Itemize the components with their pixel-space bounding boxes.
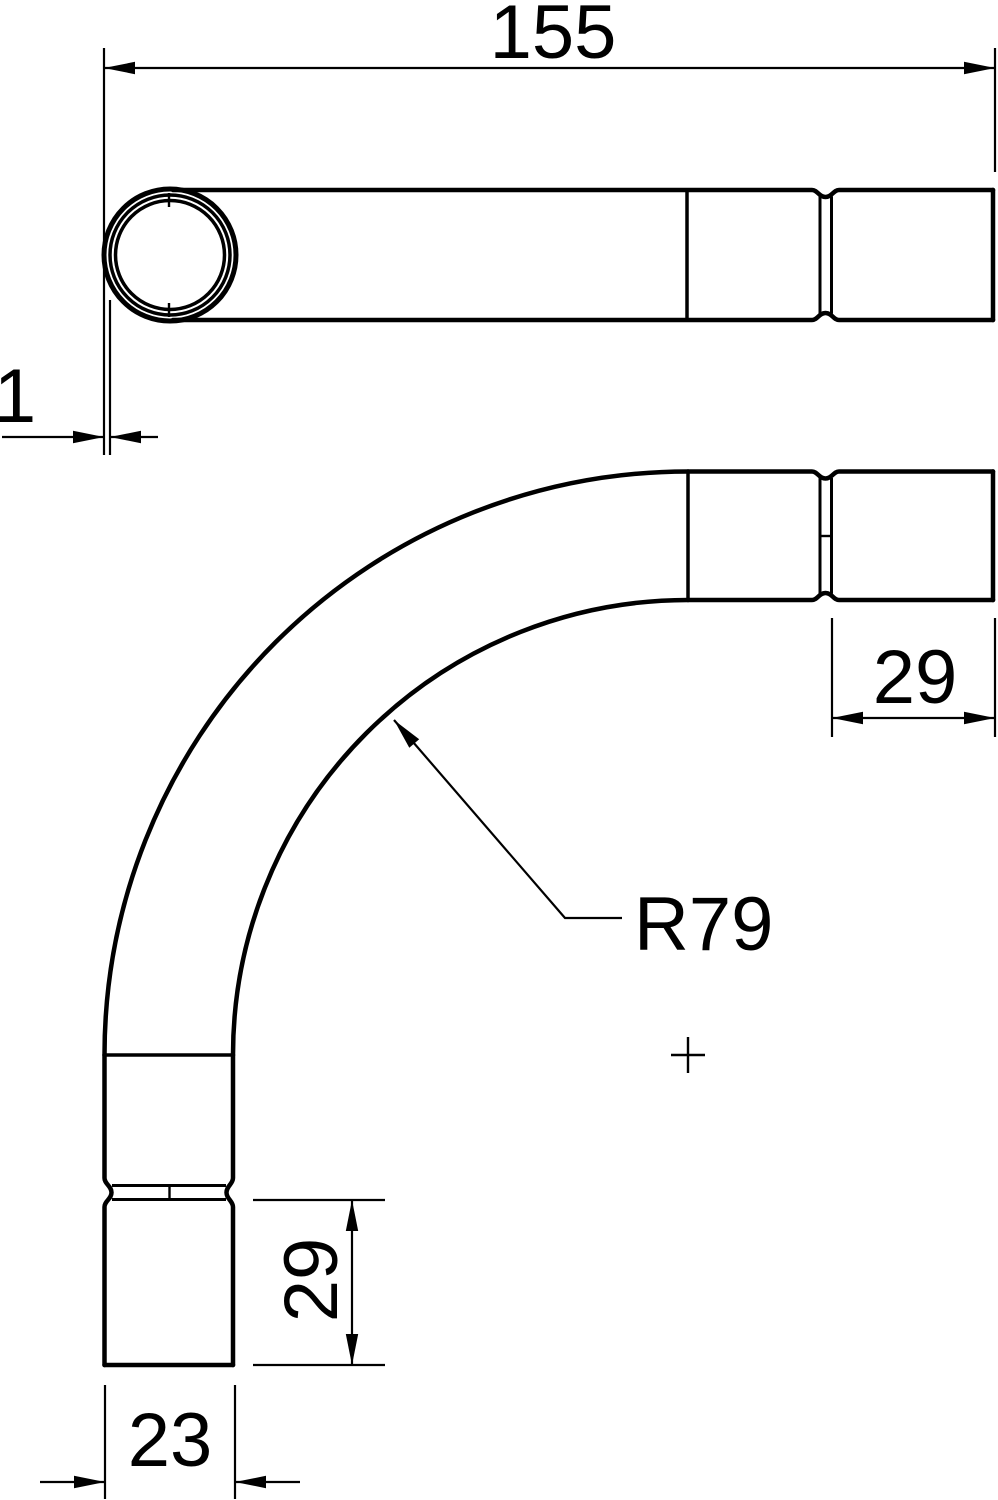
arrowhead-right <box>964 62 995 74</box>
arrowhead-left <box>73 431 104 443</box>
dim-label-socket-right: 29 <box>873 635 958 720</box>
dim-label-bend-radius: R79 <box>634 882 773 967</box>
dim-socket-length-right: 29 <box>832 618 995 737</box>
arrowhead-top <box>346 1200 358 1231</box>
end-circle-middle <box>110 195 230 315</box>
top-leg-top-edge <box>688 472 993 479</box>
end-circle-outer <box>104 189 236 321</box>
dim-end-width: 23 <box>40 1385 300 1499</box>
pipe-top-edge <box>173 190 993 197</box>
arrowhead-left <box>104 62 135 74</box>
dim-label-overall-length: 155 <box>490 0 617 75</box>
left-leg-left-edge <box>105 1055 112 1365</box>
arrowhead-left <box>832 712 863 724</box>
radius-leader-line <box>394 720 622 918</box>
dim-bend-radius: R79 <box>394 720 773 967</box>
dim-label-end-width: 23 <box>128 1398 213 1483</box>
center-cross-icon <box>671 1037 705 1073</box>
arrowhead-bottom <box>346 1334 358 1365</box>
bend-outer-arc <box>105 472 689 1056</box>
conduit-bend-drawing: 155 1 <box>0 0 998 1500</box>
socket-neck-groove <box>820 197 832 314</box>
bend-view: R79 29 29 23 <box>40 472 995 1500</box>
dim-label-wall-thickness: 1 <box>0 354 36 439</box>
conduit-bend-profile <box>105 472 994 1366</box>
arrowhead-right <box>235 1476 266 1488</box>
dim-socket-length-bottom: 29 <box>253 1200 385 1365</box>
arrowhead-left <box>74 1476 105 1488</box>
top-leg-bottom-edge <box>688 593 993 600</box>
conduit-end-circle <box>104 189 236 321</box>
bend-center-mark <box>671 1037 705 1073</box>
arrowhead-right <box>110 431 141 443</box>
dim-label-socket-bottom: 29 <box>269 1238 354 1323</box>
pipe-bottom-edge <box>173 313 993 320</box>
technical-drawing-canvas: 155 1 <box>0 0 998 1500</box>
side-view: 155 1 <box>0 0 995 455</box>
conduit-side-profile <box>173 190 993 320</box>
dim-wall-thickness: 1 <box>0 300 158 455</box>
arrowhead-right <box>964 712 995 724</box>
dim-overall-length: 155 <box>104 0 995 455</box>
left-leg-right-edge <box>227 1055 234 1365</box>
bend-inner-arc <box>233 600 688 1055</box>
end-circle-inner <box>116 201 225 310</box>
